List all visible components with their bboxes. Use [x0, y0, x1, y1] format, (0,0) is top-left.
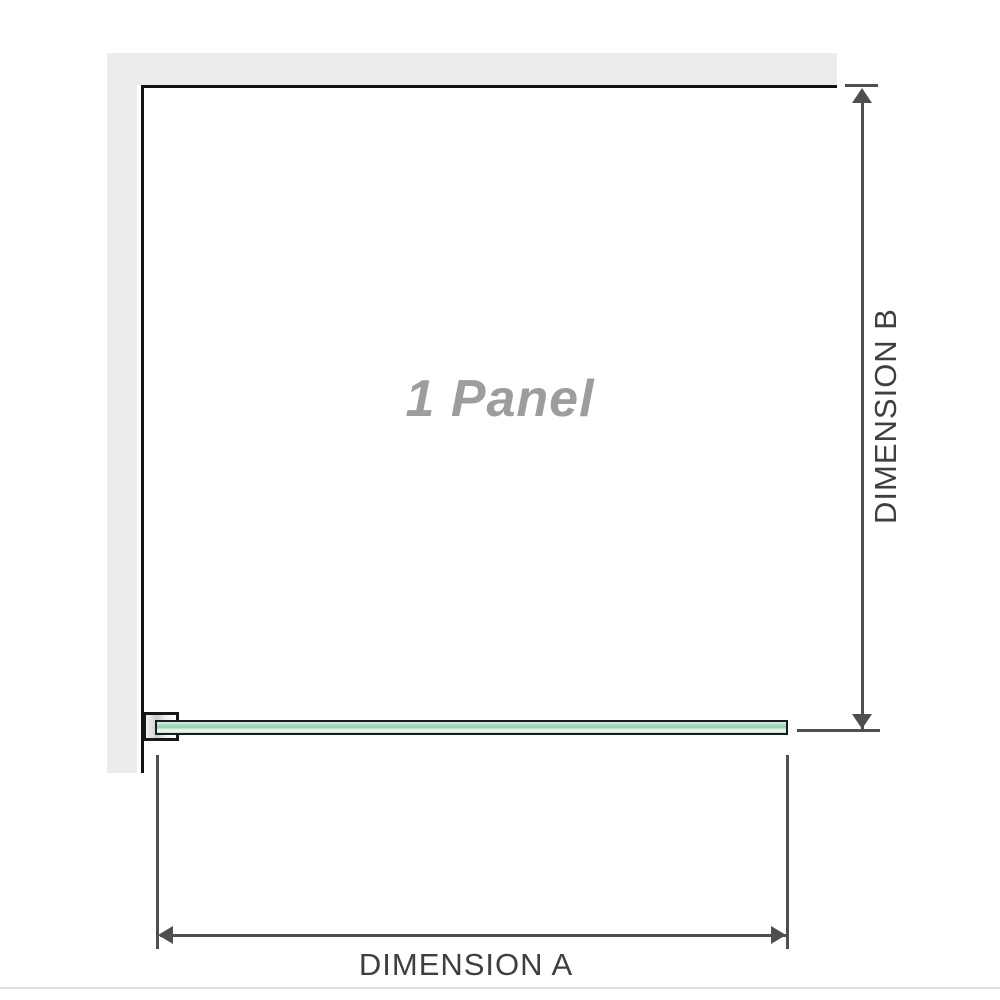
arrow-left-icon — [158, 926, 173, 944]
shower-panel-diagram: 1 Panel DIMENSION B DIMENSION A — [0, 0, 1000, 1000]
wall-top — [107, 53, 837, 85]
arrow-down-icon — [852, 714, 872, 729]
arrow-right-icon — [771, 926, 786, 944]
dimension-b-label: DIMENSION B — [868, 308, 904, 524]
glass-panel — [155, 720, 788, 735]
page-divider — [0, 987, 1000, 989]
dimension-b-tick-top — [845, 84, 878, 87]
dimension-a-extension-right — [786, 755, 789, 949]
enclosure-outline-left — [141, 85, 144, 773]
dimension-a-extension-left — [156, 755, 159, 949]
dimension-b-line — [861, 92, 864, 730]
enclosure-outline-top — [141, 85, 837, 88]
dimension-a-label: DIMENSION A — [359, 947, 573, 983]
panel-count-label: 1 Panel — [405, 369, 594, 429]
dimension-a-line — [160, 934, 786, 937]
wall-left — [107, 53, 137, 773]
dimension-b-tick-bottom — [797, 729, 880, 732]
arrow-up-icon — [852, 88, 872, 103]
